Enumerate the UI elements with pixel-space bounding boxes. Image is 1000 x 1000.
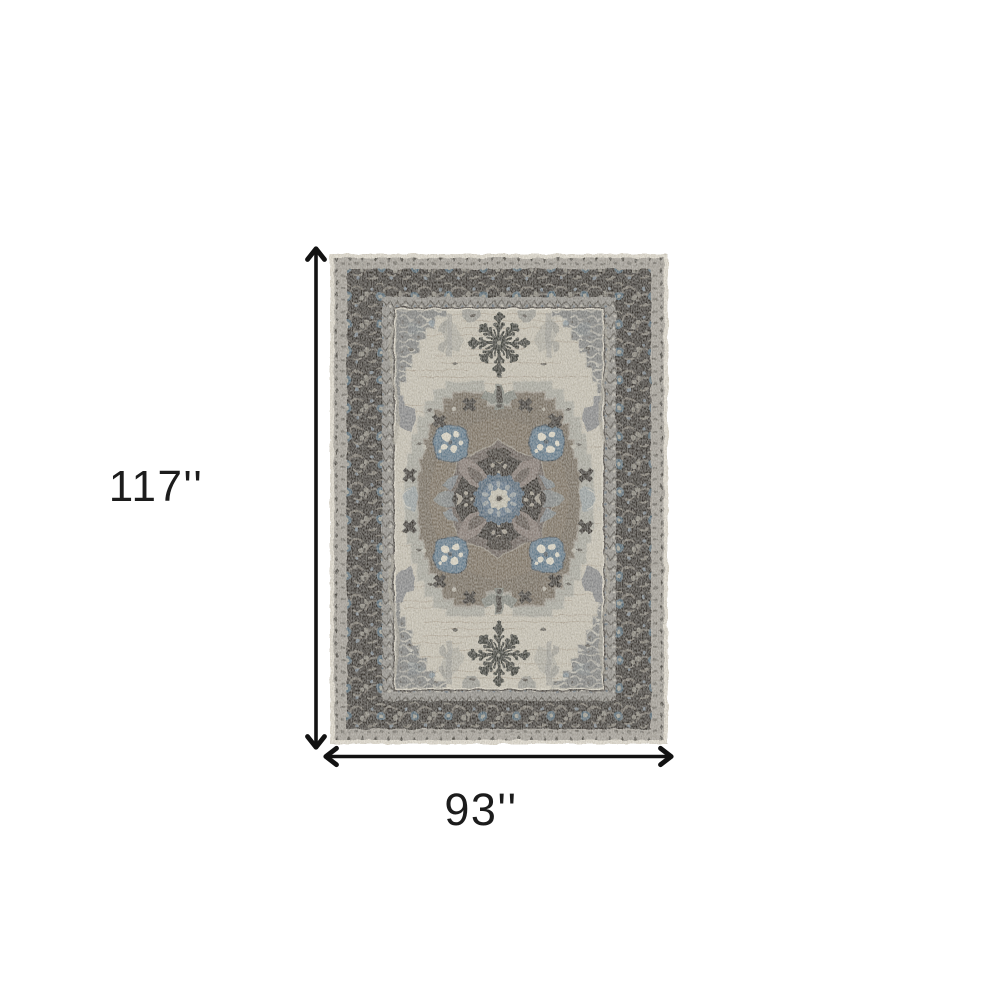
svg-text:117'': 117'' xyxy=(109,462,203,511)
svg-text:93'': 93'' xyxy=(444,784,517,835)
